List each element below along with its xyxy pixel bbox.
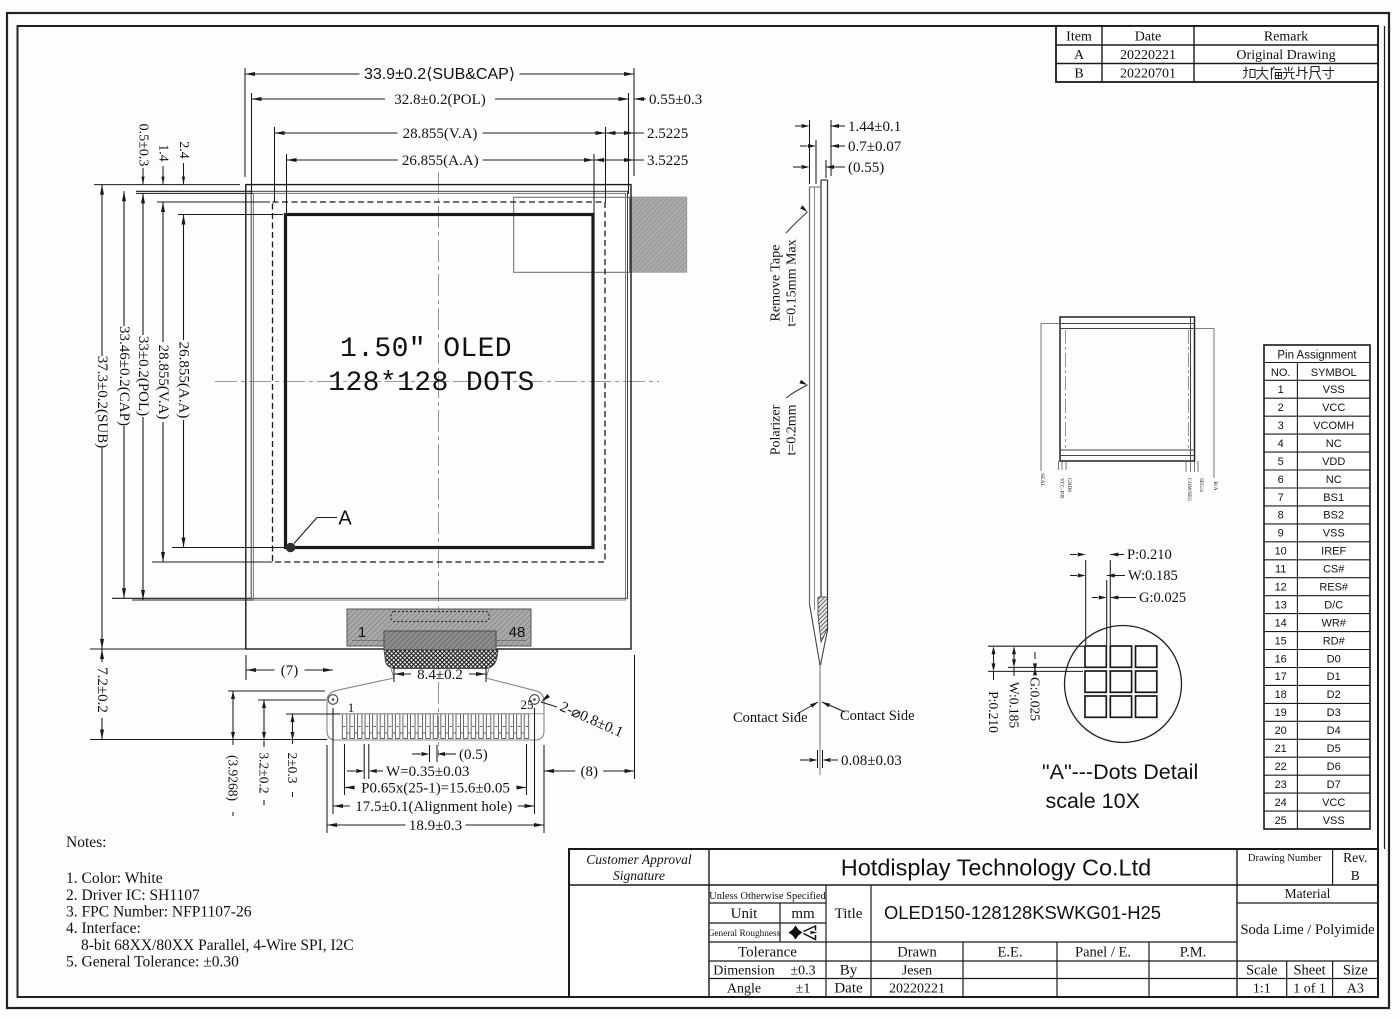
svg-text:23: 23 <box>1275 779 1287 791</box>
svg-text:1.44±0.1: 1.44±0.1 <box>848 119 901 135</box>
svg-text:VSS: VSS <box>1323 815 1345 827</box>
svg-text:Original Drawing: Original Drawing <box>1236 48 1335 63</box>
svg-text:1.4: 1.4 <box>156 144 171 162</box>
svg-text:±1: ±1 <box>796 982 811 997</box>
svg-text:BS1: BS1 <box>1323 492 1344 504</box>
svg-text:18: 18 <box>1275 689 1287 701</box>
svg-text:Date: Date <box>834 981 863 997</box>
svg-text:RD#: RD# <box>1323 635 1346 647</box>
svg-text:D5: D5 <box>1327 743 1341 755</box>
svg-text:28.855(V.A): 28.855(V.A) <box>403 126 478 142</box>
svg-text:CS#: CS# <box>1323 564 1345 576</box>
svg-text:12: 12 <box>1275 582 1287 594</box>
svg-text:Sheet: Sheet <box>1293 963 1325 979</box>
svg-text:Notes:: Notes: <box>66 834 106 851</box>
svg-text:1: 1 <box>358 624 366 641</box>
svg-text:D1: D1 <box>1327 671 1341 683</box>
svg-text:Customer Approval: Customer Approval <box>586 852 692 867</box>
svg-text:32.8±0.2(POL): 32.8±0.2(POL) <box>394 92 486 108</box>
svg-text:A3: A3 <box>1347 982 1364 997</box>
svg-text:GND8: GND8 <box>1066 478 1072 492</box>
svg-text:IREF: IREF <box>1321 546 1346 558</box>
svg-text:±0.3: ±0.3 <box>790 964 815 979</box>
svg-text:Title: Title <box>835 906 863 922</box>
svg-text:24: 24 <box>1275 797 1287 809</box>
svg-text:A: A <box>338 508 352 530</box>
svg-text:t=0.15mm Max: t=0.15mm Max <box>785 239 800 326</box>
svg-text:6: 6 <box>1278 474 1284 486</box>
svg-text:Unit: Unit <box>731 906 759 922</box>
svg-text:22: 22 <box>1275 761 1287 773</box>
svg-text:1:1: 1:1 <box>1253 982 1271 997</box>
svg-text:11: 11 <box>1275 564 1286 576</box>
svg-text:(8): (8) <box>581 764 599 780</box>
svg-text:20: 20 <box>1275 725 1287 737</box>
svg-text:7: 7 <box>1278 492 1284 504</box>
svg-text:NC: NC <box>1326 438 1342 450</box>
svg-text:scale 10X: scale 10X <box>1046 789 1140 813</box>
svg-text:2.5225: 2.5225 <box>647 126 688 142</box>
svg-text:Drawn: Drawn <box>897 945 937 961</box>
svg-text:Scale: Scale <box>1246 963 1277 979</box>
svg-text:4. Interface:: 4. Interface: <box>66 920 141 937</box>
svg-text:B: B <box>1074 67 1083 82</box>
svg-text:15: 15 <box>1275 635 1287 647</box>
svg-text:mm: mm <box>791 906 815 922</box>
svg-text:4: 4 <box>1278 438 1284 450</box>
svg-text:Date: Date <box>1135 30 1161 45</box>
svg-text:Drawing Number: Drawing Number <box>1248 853 1322 864</box>
svg-text:18.9±0.3: 18.9±0.3 <box>409 818 462 834</box>
svg-text:20220701: 20220701 <box>1120 67 1176 82</box>
svg-text:Unless Otherwise Specified: Unless Otherwise Specified <box>709 891 826 902</box>
svg-text:0.08±0.03: 0.08±0.03 <box>841 753 902 769</box>
svg-text:P0.65x(25-1)=15.6±0.05: P0.65x(25-1)=15.6±0.05 <box>361 781 510 797</box>
svg-text:2±0.3: 2±0.3 <box>285 752 300 783</box>
svg-text:WR#: WR# <box>1321 617 1346 629</box>
svg-text:VCC: VCC <box>1322 402 1345 414</box>
svg-text:P:0.210: P:0.210 <box>986 691 1001 733</box>
svg-text:VCC: VCC <box>1322 797 1345 809</box>
svg-text:Contact Side: Contact Side <box>733 710 808 726</box>
svg-text:W=0.35±0.03: W=0.35±0.03 <box>386 764 469 780</box>
svg-text:Contact Side: Contact Side <box>840 708 915 724</box>
svg-text:33±0.2(POL): 33±0.2(POL) <box>135 336 151 416</box>
svg-text:By: By <box>840 963 858 979</box>
svg-text:COM/SEG: COM/SEG <box>1186 478 1192 501</box>
svg-text:20220221: 20220221 <box>1120 48 1176 63</box>
svg-text:1: 1 <box>1278 384 1284 396</box>
svg-text:VCC-IN8: VCC-IN8 <box>1059 478 1065 499</box>
svg-text:3.2±0.2: 3.2±0.2 <box>257 752 272 793</box>
svg-text:7.2±0.2: 7.2±0.2 <box>94 667 110 713</box>
svg-text:3. FPC Number: NFP1107-26: 3. FPC Number: NFP1107-26 <box>66 904 252 921</box>
svg-text:17.5±0.1(Alignment hole): 17.5±0.1(Alignment hole) <box>355 799 512 815</box>
svg-text:2.4: 2.4 <box>176 141 191 159</box>
svg-text:8: 8 <box>1278 510 1284 522</box>
svg-text:0.55±0.3: 0.55±0.3 <box>649 92 702 108</box>
svg-text:13: 13 <box>1275 599 1287 611</box>
svg-text:SEAL: SEAL <box>1039 473 1045 487</box>
svg-text:17: 17 <box>1275 671 1287 683</box>
svg-text:"A"---Dots Detail: "A"---Dots Detail <box>1042 760 1198 784</box>
svg-text:14: 14 <box>1275 617 1287 629</box>
svg-text:SEG/4: SEG/4 <box>1198 478 1204 492</box>
svg-text:Size: Size <box>1343 963 1368 979</box>
svg-text:P.M.: P.M. <box>1180 945 1207 961</box>
svg-text:Soda Lime / Polyimide: Soda Lime / Polyimide <box>1240 922 1374 938</box>
svg-text:RES#: RES# <box>1319 582 1349 594</box>
svg-text:BS2: BS2 <box>1323 510 1344 522</box>
svg-text:D2: D2 <box>1327 689 1341 701</box>
svg-text:D3: D3 <box>1327 707 1341 719</box>
svg-text:3: 3 <box>1278 420 1284 432</box>
svg-text:Pin Assignment: Pin Assignment <box>1277 350 1357 362</box>
svg-text:Polarizer: Polarizer <box>769 404 784 455</box>
svg-text:1. Color: White: 1. Color: White <box>66 870 163 887</box>
svg-text:W:0.185: W:0.185 <box>1128 568 1178 584</box>
svg-text:D/C: D/C <box>1324 599 1343 611</box>
svg-text:26.855(A.A): 26.855(A.A) <box>402 153 479 169</box>
svg-text:28.855(V.A): 28.855(V.A) <box>155 345 171 420</box>
svg-text:Tolerance: Tolerance <box>738 945 797 961</box>
svg-text:VDD: VDD <box>1322 456 1345 468</box>
svg-text:5. General Tolerance: ±0.30: 5. General Tolerance: ±0.30 <box>66 954 239 971</box>
svg-text:8-bit 68XX/80XX Parallel, 4-Wi: 8-bit 68XX/80XX Parallel, 4-Wire SPI, I2… <box>81 937 354 954</box>
svg-text:P:0.210: P:0.210 <box>1127 547 1172 563</box>
svg-text:Rev.: Rev. <box>1343 850 1367 865</box>
svg-text:16: 16 <box>1275 653 1287 665</box>
svg-text:A: A <box>1074 48 1085 63</box>
svg-text:NO.: NO. <box>1271 367 1291 379</box>
svg-text:19: 19 <box>1275 707 1287 719</box>
svg-text:9: 9 <box>1278 528 1284 540</box>
svg-text:D6: D6 <box>1327 761 1341 773</box>
svg-text:0.7±0.07: 0.7±0.07 <box>848 139 902 155</box>
svg-text:(0.5): (0.5) <box>459 747 488 763</box>
svg-text:VSS: VSS <box>1323 528 1345 540</box>
svg-text:2. Driver IC: SH1107: 2. Driver IC: SH1107 <box>66 887 200 904</box>
svg-text:1.50″ OLED: 1.50″ OLED <box>340 334 512 365</box>
svg-text:33.46±0.2(CAP): 33.46±0.2(CAP) <box>116 326 132 426</box>
svg-text:Material: Material <box>1285 886 1331 901</box>
svg-text:D7: D7 <box>1327 779 1341 791</box>
svg-text:25: 25 <box>1275 815 1287 827</box>
svg-text:10: 10 <box>1275 546 1287 558</box>
svg-text:Hotdisplay Technology Co.Ltd: Hotdisplay Technology Co.Ltd <box>841 855 1151 881</box>
svg-text:128*128 DOTS: 128*128 DOTS <box>328 368 534 399</box>
svg-text:G:0.025: G:0.025 <box>1139 590 1186 606</box>
svg-text:SYMBOL: SYMBOL <box>1311 367 1357 379</box>
svg-text:Panel / E.: Panel / E. <box>1075 945 1131 961</box>
svg-text:8.4±0.2: 8.4±0.2 <box>417 667 463 683</box>
svg-text:37.3±0.2(SUB): 37.3±0.2(SUB) <box>94 356 110 448</box>
svg-text:General Roughness: General Roughness <box>708 929 781 939</box>
svg-text:D0: D0 <box>1327 653 1341 665</box>
svg-text:Angle: Angle <box>727 982 761 997</box>
svg-text:NC: NC <box>1326 474 1342 486</box>
svg-text:(7): (7) <box>281 663 299 679</box>
svg-text:E.E.: E.E. <box>998 945 1023 961</box>
svg-text:G:0.025: G:0.025 <box>1028 677 1043 721</box>
svg-text:D4: D4 <box>1327 725 1341 737</box>
svg-text:OLED150-128128KSWKG01-H25: OLED150-128128KSWKG01-H25 <box>884 902 1161 923</box>
svg-text:25: 25 <box>521 697 534 712</box>
svg-text:0.5±0.3: 0.5±0.3 <box>136 124 151 167</box>
svg-text:21: 21 <box>1275 743 1287 755</box>
svg-text:Dimension: Dimension <box>713 964 774 979</box>
svg-text:W:0.185: W:0.185 <box>1007 682 1022 729</box>
svg-text:(0.55): (0.55) <box>848 160 884 176</box>
svg-text:Item: Item <box>1066 30 1092 45</box>
svg-text:1 of 1: 1 of 1 <box>1293 982 1326 997</box>
svg-text:VCOMH: VCOMH <box>1313 420 1354 432</box>
svg-text:Remove Tape: Remove Tape <box>769 245 784 322</box>
svg-text:1: 1 <box>348 700 355 715</box>
svg-text:33.9±0.2⟨SUB&CAP⟩: 33.9±0.2⟨SUB&CAP⟩ <box>364 66 515 83</box>
svg-text:B: B <box>1351 868 1360 883</box>
svg-text:B/A: B/A <box>1212 481 1218 490</box>
svg-text:Signature: Signature <box>613 868 665 883</box>
svg-text:48: 48 <box>509 624 526 641</box>
svg-text:Jesen: Jesen <box>902 964 932 979</box>
svg-text:20220221: 20220221 <box>889 982 945 997</box>
svg-text:Remark: Remark <box>1264 30 1308 45</box>
svg-text:2: 2 <box>1278 402 1284 414</box>
svg-text:3.5225: 3.5225 <box>647 153 688 169</box>
svg-text:t=0.2mm: t=0.2mm <box>785 404 800 455</box>
svg-text:5: 5 <box>1278 456 1284 468</box>
svg-text:(3.9268): (3.9268) <box>226 755 241 801</box>
svg-text:26.855(A.A): 26.855(A.A) <box>176 342 192 419</box>
svg-text:VSS: VSS <box>1323 384 1345 396</box>
